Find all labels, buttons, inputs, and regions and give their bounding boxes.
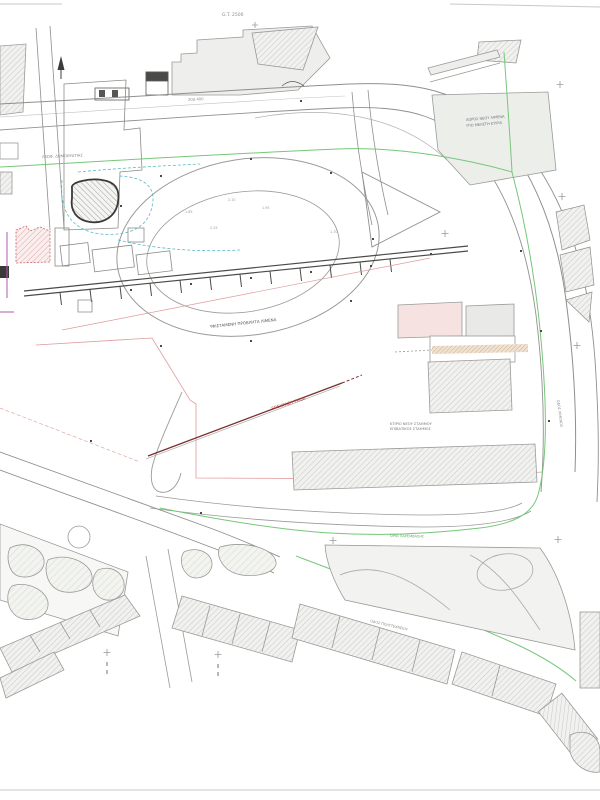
plot-ref-label: G.T. 2500 [222, 12, 244, 18]
pier-structure [24, 246, 468, 305]
spot-level-4: 2.25 [210, 226, 218, 230]
hatched-building-long [292, 444, 537, 490]
pier-note-label: ΥΦΙΣΤΑΜΕΝΗ ΠΡΟΒΛΗΤΑ ΛΙΜΕΝΑ [209, 317, 277, 329]
site-plan-drawing: G.T. 2500 200.400 ΛΕΩΦ. ΔΗΜΟΚΡΑΤΙΑΣ ΧΩΡΟ… [0, 0, 600, 800]
plan-sheet: G.T. 2500 200.400 ΛΕΩΦ. ΔΗΜΟΚΡΑΤΙΑΣ ΧΩΡΟ… [0, 0, 600, 800]
parcel-under-study [432, 92, 556, 185]
heritage-building [72, 179, 119, 222]
spot-level-3: 1.95 [262, 206, 270, 210]
station-buildings [292, 302, 537, 490]
north-arrow-icon [58, 56, 65, 79]
red-hatched-building [16, 226, 50, 263]
road-dim-label: 200.400 [188, 96, 205, 102]
spot-level-1: 1.85 [185, 210, 193, 214]
station-note-line1: ΚΤΙΡΙΟ ΝΕΟΥ ΣΤΑΘΜΟΥ [390, 422, 433, 426]
solid-building [0, 266, 9, 278]
spot-level-5: 1.70 [330, 230, 338, 234]
hatched-building-large [428, 359, 512, 413]
spot-level-2: 2.10 [228, 198, 236, 202]
boundary-note-label: ΟΡΙΟ ΠΑΡΕΜΒΑΣΗΣ [390, 534, 424, 539]
station-note-line2: ΕΠΙΒΑΤΙΚΟΣ ΣΤΑΘΜΟΣ [390, 427, 431, 431]
tram-line [146, 375, 362, 459]
left-building-cluster [0, 80, 172, 312]
street-right-label: ΟΔΟΣ ΛΙΜΕΝΟΣ [556, 400, 563, 428]
street-top-label: ΛΕΩΦ. ΔΗΜΟΚΡΑΤΙΑΣ [42, 153, 84, 159]
tram-note-label: ΕΠΕΚΤΑΣΗ ΤΡΑΜ [271, 396, 307, 411]
pink-building [398, 302, 462, 338]
